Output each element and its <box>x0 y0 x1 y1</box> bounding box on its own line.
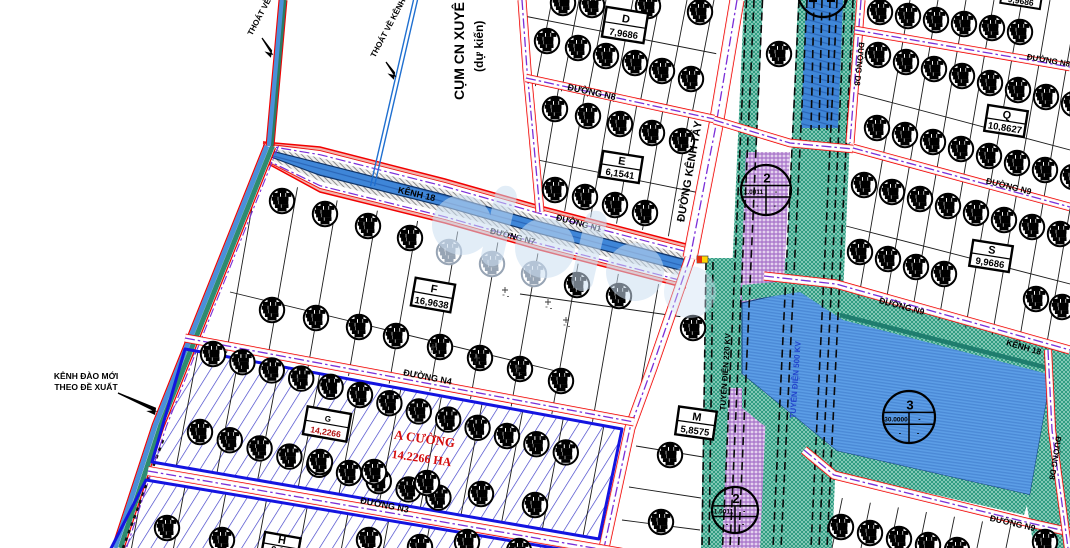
svg-text:3: 3 <box>906 397 913 412</box>
svg-text:(dự kiến): (dự kiến) <box>472 21 486 72</box>
svg-text:M: M <box>691 411 702 424</box>
svg-text:2: 2 <box>763 171 770 186</box>
svg-text:CỤM CN XUYÊ: CỤM CN XUYÊ <box>450 2 467 100</box>
svg-text:KÊNH ĐÀO MỚI: KÊNH ĐÀO MỚI <box>54 370 118 381</box>
svg-text:1.0011: 1.0011 <box>714 508 734 515</box>
svg-text:30.0000: 30.0000 <box>884 416 908 423</box>
svg-text:THEO ĐỀ XUẤT: THEO ĐỀ XUẤT <box>54 382 118 392</box>
svg-text:2: 2 <box>732 491 739 506</box>
svg-text:1.0011: 1.0011 <box>744 189 764 196</box>
